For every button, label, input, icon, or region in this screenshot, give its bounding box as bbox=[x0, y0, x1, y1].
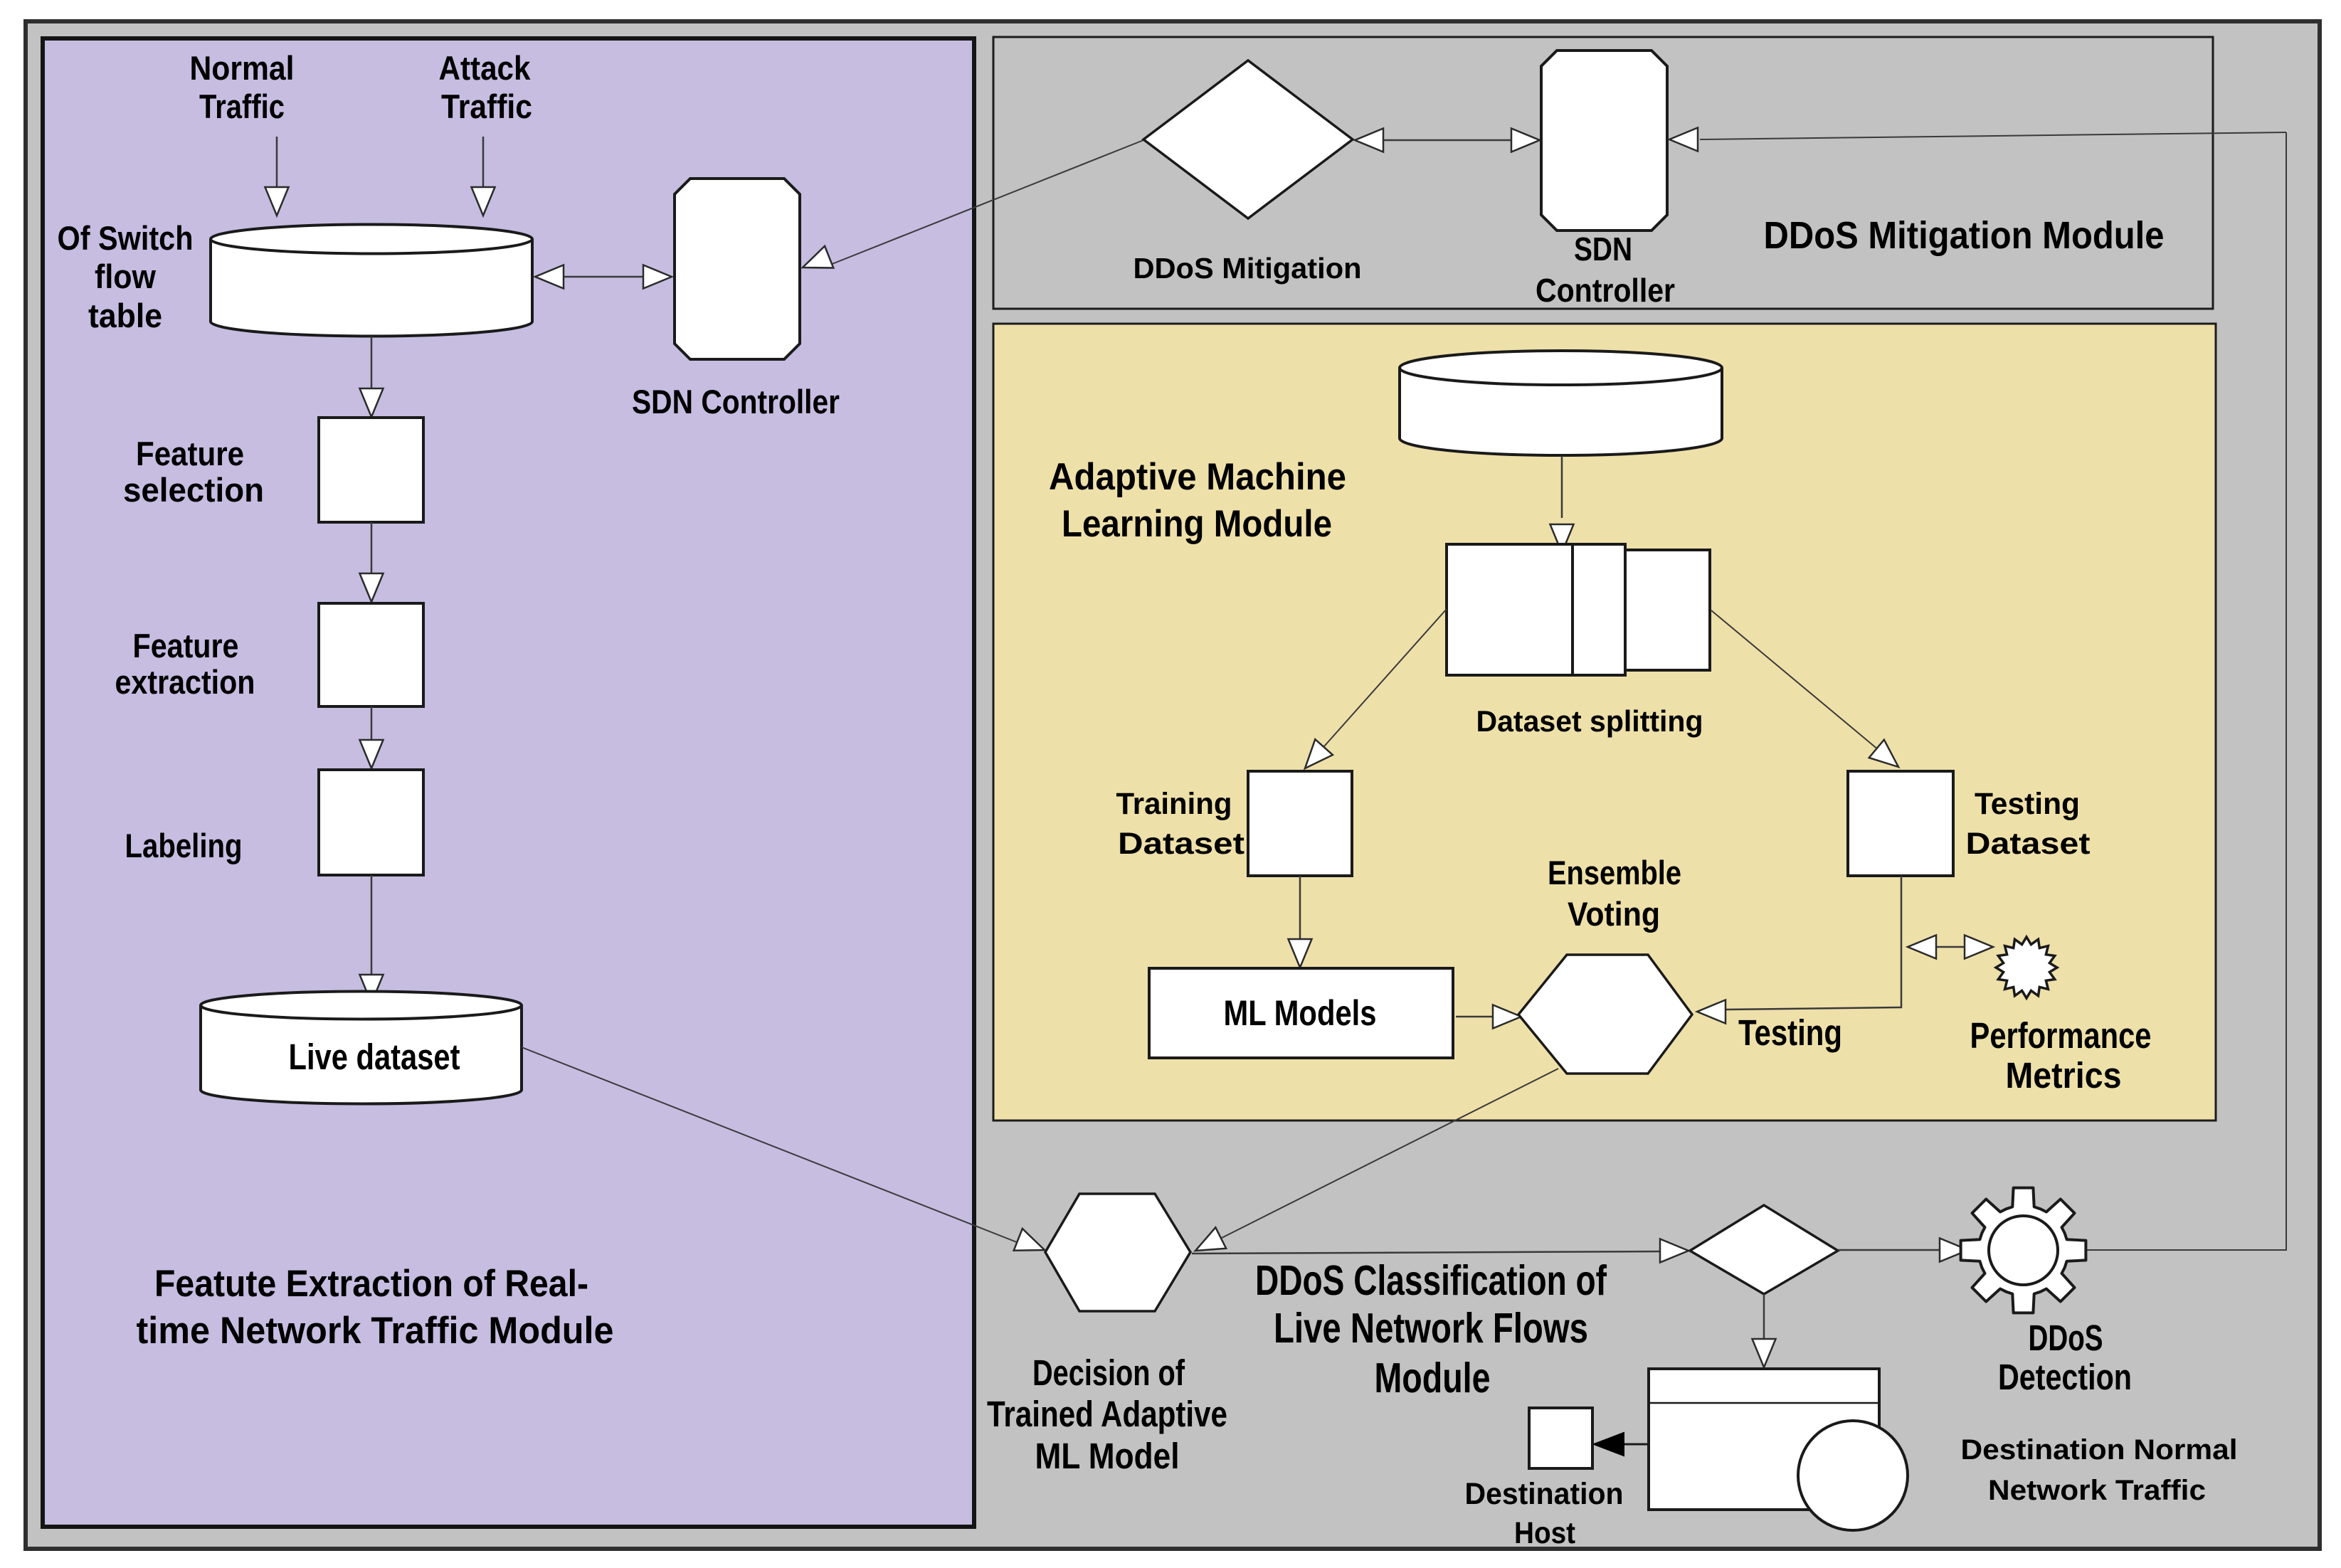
svg-text:Trained Adaptive: Trained Adaptive bbox=[987, 1394, 1227, 1434]
svg-text:ML Model: ML Model bbox=[1035, 1436, 1180, 1476]
svg-text:extraction: extraction bbox=[115, 663, 255, 701]
svg-text:Module: Module bbox=[1375, 1355, 1491, 1402]
svg-text:DDoS Classification of: DDoS Classification of bbox=[1255, 1257, 1607, 1304]
svg-text:Feature: Feature bbox=[133, 627, 239, 664]
svg-text:Dataset: Dataset bbox=[1966, 827, 2091, 861]
svg-text:Metrics: Metrics bbox=[2006, 1055, 2122, 1096]
svg-text:Featute Extraction of Real-: Featute Extraction of Real- bbox=[154, 1263, 588, 1305]
svg-text:Feature: Feature bbox=[136, 435, 244, 472]
svg-text:Of Switch: Of Switch bbox=[58, 219, 194, 257]
svg-text:Normal: Normal bbox=[190, 49, 295, 87]
svg-text:Live Network Flows: Live Network Flows bbox=[1274, 1305, 1588, 1352]
svg-text:Detection: Detection bbox=[1998, 1357, 2132, 1397]
svg-text:Voting: Voting bbox=[1568, 895, 1660, 933]
svg-text:DDoS Mitigation Module: DDoS Mitigation Module bbox=[1764, 214, 2165, 257]
svg-text:Dataset splitting: Dataset splitting bbox=[1476, 704, 1703, 738]
svg-text:Performance: Performance bbox=[1970, 1015, 2152, 1056]
svg-text:ML Models: ML Models bbox=[1224, 993, 1377, 1033]
svg-text:Destination: Destination bbox=[1465, 1477, 1624, 1511]
svg-text:Destination Normal: Destination Normal bbox=[1961, 1434, 2238, 1466]
svg-text:time Network Traffic Module: time Network Traffic Module bbox=[137, 1310, 614, 1352]
svg-text:Decision of: Decision of bbox=[1032, 1352, 1185, 1393]
svg-text:Testing: Testing bbox=[1738, 1012, 1842, 1053]
svg-text:Live dataset: Live dataset bbox=[289, 1037, 460, 1077]
svg-text:Training: Training bbox=[1116, 787, 1232, 821]
svg-text:Controller: Controller bbox=[1536, 272, 1675, 309]
svg-text:Adaptive Machine: Adaptive Machine bbox=[1049, 456, 1346, 498]
svg-text:Traffic: Traffic bbox=[199, 88, 285, 125]
svg-text:SDN Controller: SDN Controller bbox=[632, 383, 840, 420]
svg-text:Host: Host bbox=[1514, 1516, 1575, 1550]
svg-text:Traffic: Traffic bbox=[441, 88, 532, 125]
svg-text:Testing: Testing bbox=[1975, 787, 2080, 821]
svg-text:DDoS: DDoS bbox=[2029, 1318, 2103, 1358]
svg-text:Attack: Attack bbox=[439, 49, 532, 87]
svg-text:table: table bbox=[88, 297, 162, 334]
svg-text:flow: flow bbox=[95, 258, 156, 295]
svg-text:selection: selection bbox=[123, 471, 264, 509]
svg-text:Dataset: Dataset bbox=[1118, 827, 1245, 861]
svg-text:Labeling: Labeling bbox=[125, 827, 243, 864]
svg-text:Network Traffic: Network Traffic bbox=[1988, 1475, 2206, 1506]
svg-text:Ensemble: Ensemble bbox=[1548, 854, 1681, 891]
svg-text:DDoS Mitigation: DDoS Mitigation bbox=[1133, 252, 1362, 285]
svg-text:Learning Module: Learning Module bbox=[1062, 503, 1332, 545]
svg-text:SDN: SDN bbox=[1574, 231, 1632, 267]
